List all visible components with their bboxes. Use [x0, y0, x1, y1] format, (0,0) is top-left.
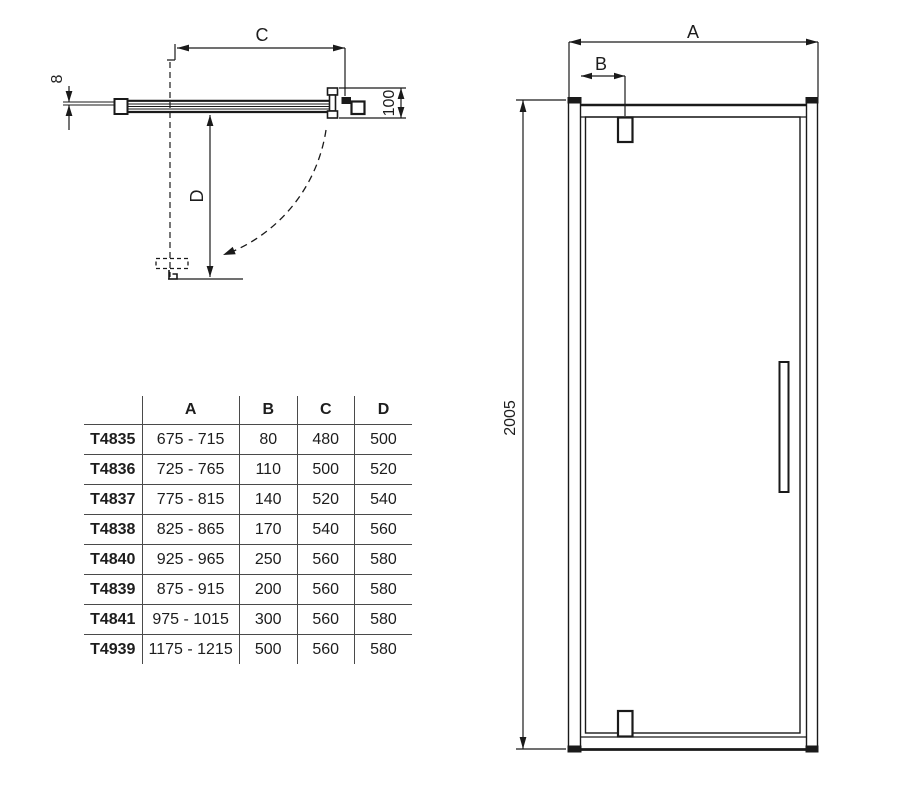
table-row: T4840 925 - 965 250 560 580 — [84, 545, 412, 575]
plan-door-panel — [63, 99, 330, 114]
front-view: A B 2005 — [502, 22, 819, 753]
technical-drawing-page: C 8 — [0, 0, 923, 805]
dim-label-c: C — [256, 25, 269, 45]
table-row: T4939 1175 - 1215 500 560 580 — [84, 635, 412, 665]
value-c: 560 — [297, 605, 354, 635]
value-c: 560 — [297, 635, 354, 665]
door-handle — [780, 362, 789, 492]
profile-top-cap — [568, 97, 582, 104]
value-d: 560 — [354, 515, 412, 545]
table-row: T4836 725 - 765 110 500 520 — [84, 455, 412, 485]
table-row: T4835 675 - 715 80 480 500 — [84, 425, 412, 455]
dimension-c: C — [167, 25, 345, 96]
model-cell: T4835 — [84, 425, 142, 455]
value-d: 580 — [354, 635, 412, 665]
value-b: 170 — [239, 515, 297, 545]
value-c: 500 — [297, 455, 354, 485]
value-a: 825 - 865 — [142, 515, 239, 545]
door-bar-inner-lines — [128, 104, 330, 109]
arrow-right-icon — [333, 45, 345, 52]
arrow-left-icon — [581, 73, 592, 79]
glass-edge-lines — [63, 102, 114, 105]
arrow-up-icon — [207, 115, 214, 126]
left-wall-profile — [568, 97, 582, 753]
dim-label-d: D — [187, 190, 207, 203]
plan-view: C 8 — [49, 25, 406, 279]
value-a: 875 - 915 — [142, 575, 239, 605]
value-a: 775 - 815 — [142, 485, 239, 515]
value-c: 520 — [297, 485, 354, 515]
size-table-header: A B C D — [84, 396, 412, 425]
value-d: 540 — [354, 485, 412, 515]
dim-label-100: 100 — [381, 90, 398, 117]
pivot-marker — [342, 97, 352, 104]
wall-profile-end-cap — [115, 99, 128, 114]
dim-label-8: 8 — [49, 74, 66, 83]
arrow-down-icon — [207, 266, 214, 277]
value-c: 480 — [297, 425, 354, 455]
value-b: 500 — [239, 635, 297, 665]
plan-wall-profile — [328, 88, 338, 118]
door-swing-arc — [229, 130, 326, 253]
arrow-right-icon — [806, 39, 818, 46]
model-cell: T4840 — [84, 545, 142, 575]
col-header-b: B — [239, 396, 297, 425]
value-a: 925 - 965 — [142, 545, 239, 575]
value-b: 300 — [239, 605, 297, 635]
value-d: 500 — [354, 425, 412, 455]
size-table: A B C D T4835 675 - 715 80 480 500 T4836… — [84, 396, 412, 664]
value-a: 725 - 765 — [142, 455, 239, 485]
model-cell: T4841 — [84, 605, 142, 635]
value-c: 560 — [297, 575, 354, 605]
table-row: T4839 875 - 915 200 560 580 — [84, 575, 412, 605]
table-row: T4841 975 - 1015 300 560 580 — [84, 605, 412, 635]
arrow-left-icon — [569, 39, 581, 46]
value-c: 560 — [297, 545, 354, 575]
value-b: 140 — [239, 485, 297, 515]
arrow-up-icon — [66, 105, 73, 116]
dim-label-b: B — [595, 54, 607, 74]
profile-top-cap — [806, 97, 819, 104]
arrow-right-icon — [614, 73, 625, 79]
col-header-c: C — [297, 396, 354, 425]
value-b: 110 — [239, 455, 297, 485]
value-d: 580 — [354, 545, 412, 575]
table-row: T4837 775 - 815 140 520 540 — [84, 485, 412, 515]
value-a: 1175 - 1215 — [142, 635, 239, 665]
arrow-down-icon — [520, 737, 527, 749]
dim-label-a: A — [687, 22, 699, 42]
arrow-down-icon — [66, 91, 73, 102]
model-cell: T4939 — [84, 635, 142, 665]
arrow-left-icon — [177, 45, 189, 52]
top-pivot-hinge — [618, 118, 633, 143]
col-header-model — [84, 396, 142, 425]
swing-arrow-icon — [223, 247, 236, 255]
value-b: 250 — [239, 545, 297, 575]
model-cell: T4836 — [84, 455, 142, 485]
open-door-outline — [156, 259, 188, 269]
value-a: 975 - 1015 — [142, 605, 239, 635]
door-glass-panel — [586, 117, 801, 733]
value-d: 580 — [354, 605, 412, 635]
arrow-up-icon — [520, 100, 527, 112]
model-cell: T4837 — [84, 485, 142, 515]
value-d: 580 — [354, 575, 412, 605]
value-d: 520 — [354, 455, 412, 485]
profile-bottom-cap — [806, 746, 819, 753]
model-cell: T4838 — [84, 515, 142, 545]
right-wall-profile — [806, 97, 819, 753]
table-row: T4838 825 - 865 170 540 560 — [84, 515, 412, 545]
profile-bottom-cap — [568, 746, 582, 753]
dimension-b: B — [581, 54, 625, 116]
value-b: 200 — [239, 575, 297, 605]
dim-label-2005: 2005 — [502, 400, 519, 436]
value-c: 540 — [297, 515, 354, 545]
arrow-down-icon — [398, 107, 405, 118]
col-header-d: D — [354, 396, 412, 425]
bottom-pivot-hinge — [618, 711, 633, 737]
model-cell: T4839 — [84, 575, 142, 605]
dimension-2005: 2005 — [502, 100, 566, 749]
value-a: 675 - 715 — [142, 425, 239, 455]
door-end-block — [352, 102, 365, 115]
value-b: 80 — [239, 425, 297, 455]
col-header-a: A — [142, 396, 239, 425]
arrow-up-icon — [398, 88, 405, 99]
